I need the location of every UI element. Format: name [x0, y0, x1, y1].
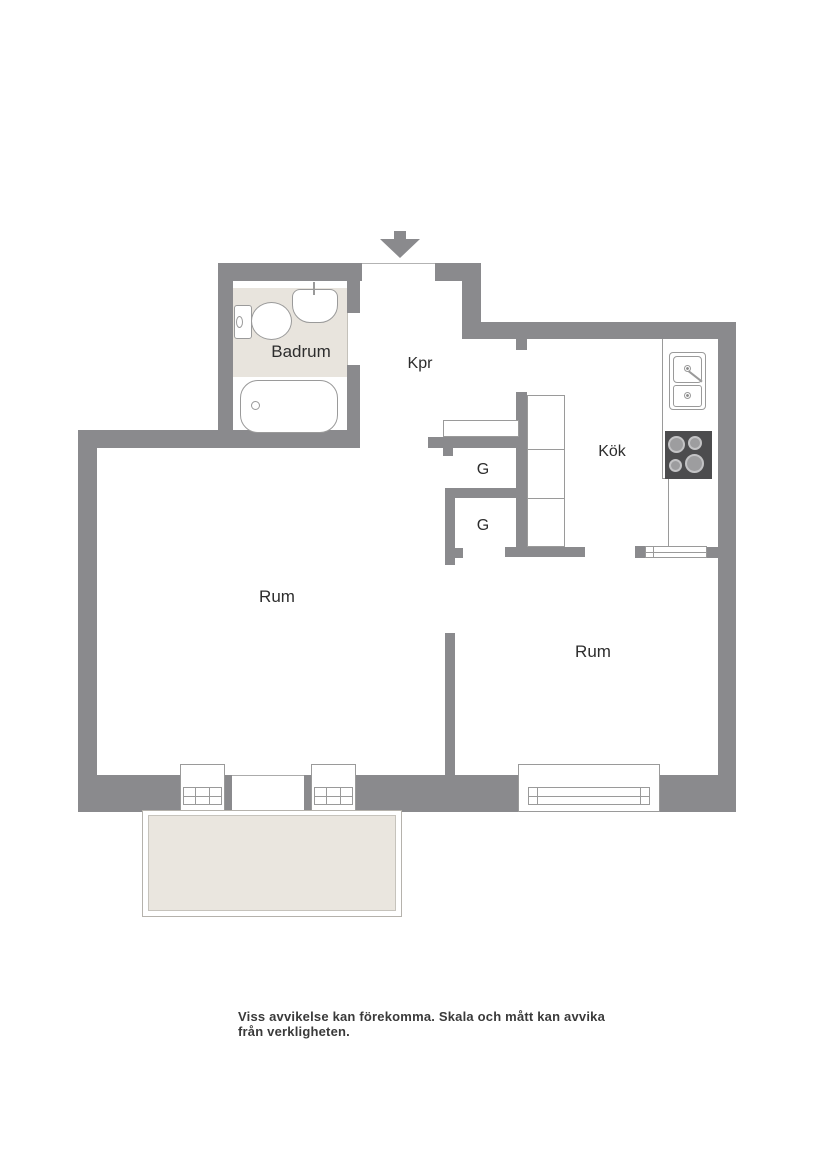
room-label-kpr: Kpr	[408, 355, 433, 373]
window-right-room	[518, 764, 660, 812]
radiator-line	[653, 547, 654, 557]
toilet-bowl	[251, 302, 292, 340]
wall-kitchen-jamb-stub	[516, 339, 527, 350]
cabinet-shelf-line	[528, 498, 564, 499]
room-label-rum-left: Rum	[259, 587, 295, 607]
balcony	[142, 810, 402, 917]
door-panel-line	[326, 788, 327, 804]
radiator-line	[537, 788, 538, 804]
wall-kitchen-bottom	[505, 547, 585, 557]
cabinet-shelf-line	[528, 449, 564, 450]
wall-top-left	[218, 263, 362, 281]
door-panel-line	[315, 796, 352, 797]
wall-room-divider	[445, 633, 455, 775]
door-panel	[183, 787, 222, 805]
radiator-line	[640, 788, 641, 804]
wall-radiator-stub-right	[706, 547, 718, 558]
toilet-flush-button	[236, 316, 243, 328]
wall-wardrobe-lower-stub	[445, 548, 463, 558]
balcony-door-left	[180, 764, 225, 812]
bathroom-door-edge	[347, 313, 348, 365]
wall-left-exterior	[78, 430, 97, 812]
room-label-badrum: Badrum	[271, 342, 331, 362]
disclaimer-caption: Viss avvikelse kan förekomma. Skala och …	[238, 1009, 622, 1039]
door-panel-line	[209, 788, 210, 804]
kitchen-counter-edge-upper	[662, 339, 663, 478]
kitchen-upper-counter	[443, 420, 519, 437]
balcony-glazing-section	[232, 775, 304, 812]
stove-burner-icon	[685, 454, 704, 473]
stove-burner-icon	[688, 436, 702, 450]
kitchen-sink-drain-lower	[684, 392, 691, 399]
radiator-line	[529, 796, 649, 797]
bathroom-sink-faucet	[313, 282, 315, 295]
bathtub-drain	[251, 401, 260, 410]
wall-wardrobe-vertical	[516, 392, 527, 553]
door-panel-line	[184, 796, 221, 797]
entrance-arrow-icon	[380, 231, 420, 258]
balcony-door-right	[311, 764, 356, 812]
wall-right-exterior	[718, 322, 736, 812]
wall-wardrobe-lower-top	[445, 488, 520, 498]
radiator-line	[646, 552, 706, 553]
wall-entry-vertical	[462, 276, 481, 328]
tall-cabinet	[527, 395, 565, 547]
window-radiator	[528, 787, 650, 805]
wall-bathroom-left	[218, 263, 233, 448]
door-panel-line	[340, 788, 341, 804]
stove	[665, 431, 712, 479]
door-panel-line	[195, 788, 196, 804]
stove-burner-icon	[669, 459, 682, 472]
kitchen-counter-edge-lower	[668, 478, 669, 547]
room-label-rum-right: Rum	[575, 642, 611, 662]
wall-kitchen-top	[462, 322, 736, 339]
bathroom-sink	[292, 289, 338, 323]
room-label-kok: Kök	[598, 443, 626, 461]
wall-radiator-stub-left	[635, 546, 645, 558]
stove-burner-icon	[668, 436, 685, 453]
wall-wardrobe-upper-top	[428, 437, 520, 448]
wall-bathroom-right-upper	[347, 278, 360, 313]
wardrobe-label-upper: G	[477, 461, 489, 479]
wardrobe-label-lower: G	[477, 517, 489, 535]
entrance-threshold-line	[362, 263, 435, 264]
kitchen-radiator	[645, 546, 707, 558]
door-panel	[314, 787, 353, 805]
wall-wardrobe-upper-stub	[443, 448, 453, 456]
balcony-floor	[148, 815, 396, 911]
floorplan-canvas: Badrum Kpr Kök G G Rum Rum Viss avvikels…	[0, 0, 814, 1152]
